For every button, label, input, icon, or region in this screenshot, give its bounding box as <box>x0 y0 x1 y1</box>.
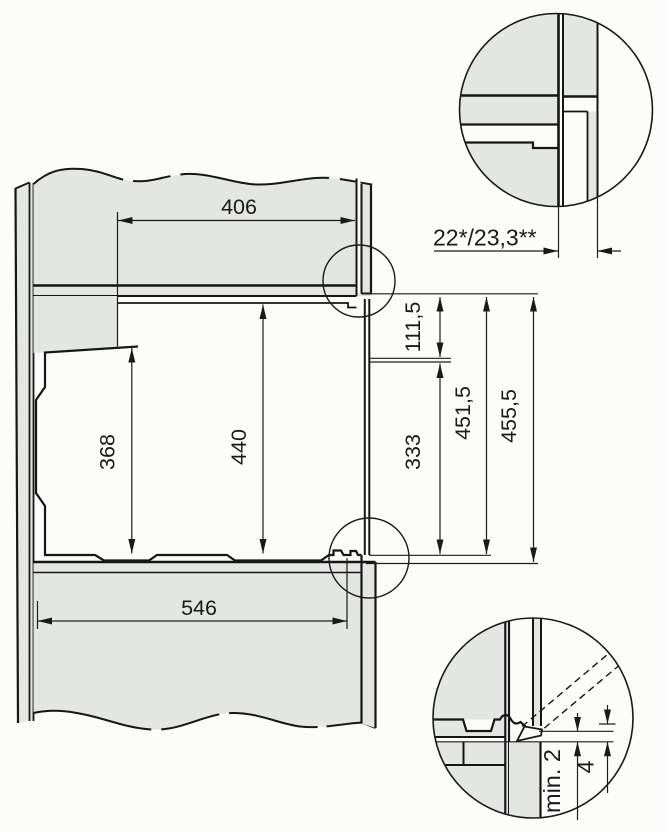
dim-label-rear-height: 368 <box>96 434 120 470</box>
dim-label-front-total-height: 455,5 <box>497 389 521 443</box>
dim-label-bottom-depth: 546 <box>181 596 217 620</box>
detail-circle-bottom: min. 2 4 <box>430 615 633 822</box>
dim-label-niche-height: 440 <box>227 429 251 465</box>
installation-diagram-page: 406 546 368 440 111,5 333 451,5 455,5 <box>0 0 668 832</box>
main-section-drawing <box>16 169 539 730</box>
dim-label-lower-front-height: 333 <box>401 434 425 470</box>
dim-label-front-panel-offset: 22*/23,3** <box>433 225 537 251</box>
installation-diagram: 406 546 368 440 111,5 333 451,5 455,5 <box>0 0 668 832</box>
dim-label-bottom-gap: min. 2 <box>539 749 565 813</box>
dim-label-front-inner-height: 451,5 <box>451 386 475 440</box>
dim-label-top-niche-depth: 406 <box>221 195 257 219</box>
dim-label-upper-front-height: 111,5 <box>401 302 425 353</box>
dim-label-door-clearance: 4 <box>573 760 599 773</box>
detail-circle-top: 22*/23,3** <box>433 8 653 258</box>
